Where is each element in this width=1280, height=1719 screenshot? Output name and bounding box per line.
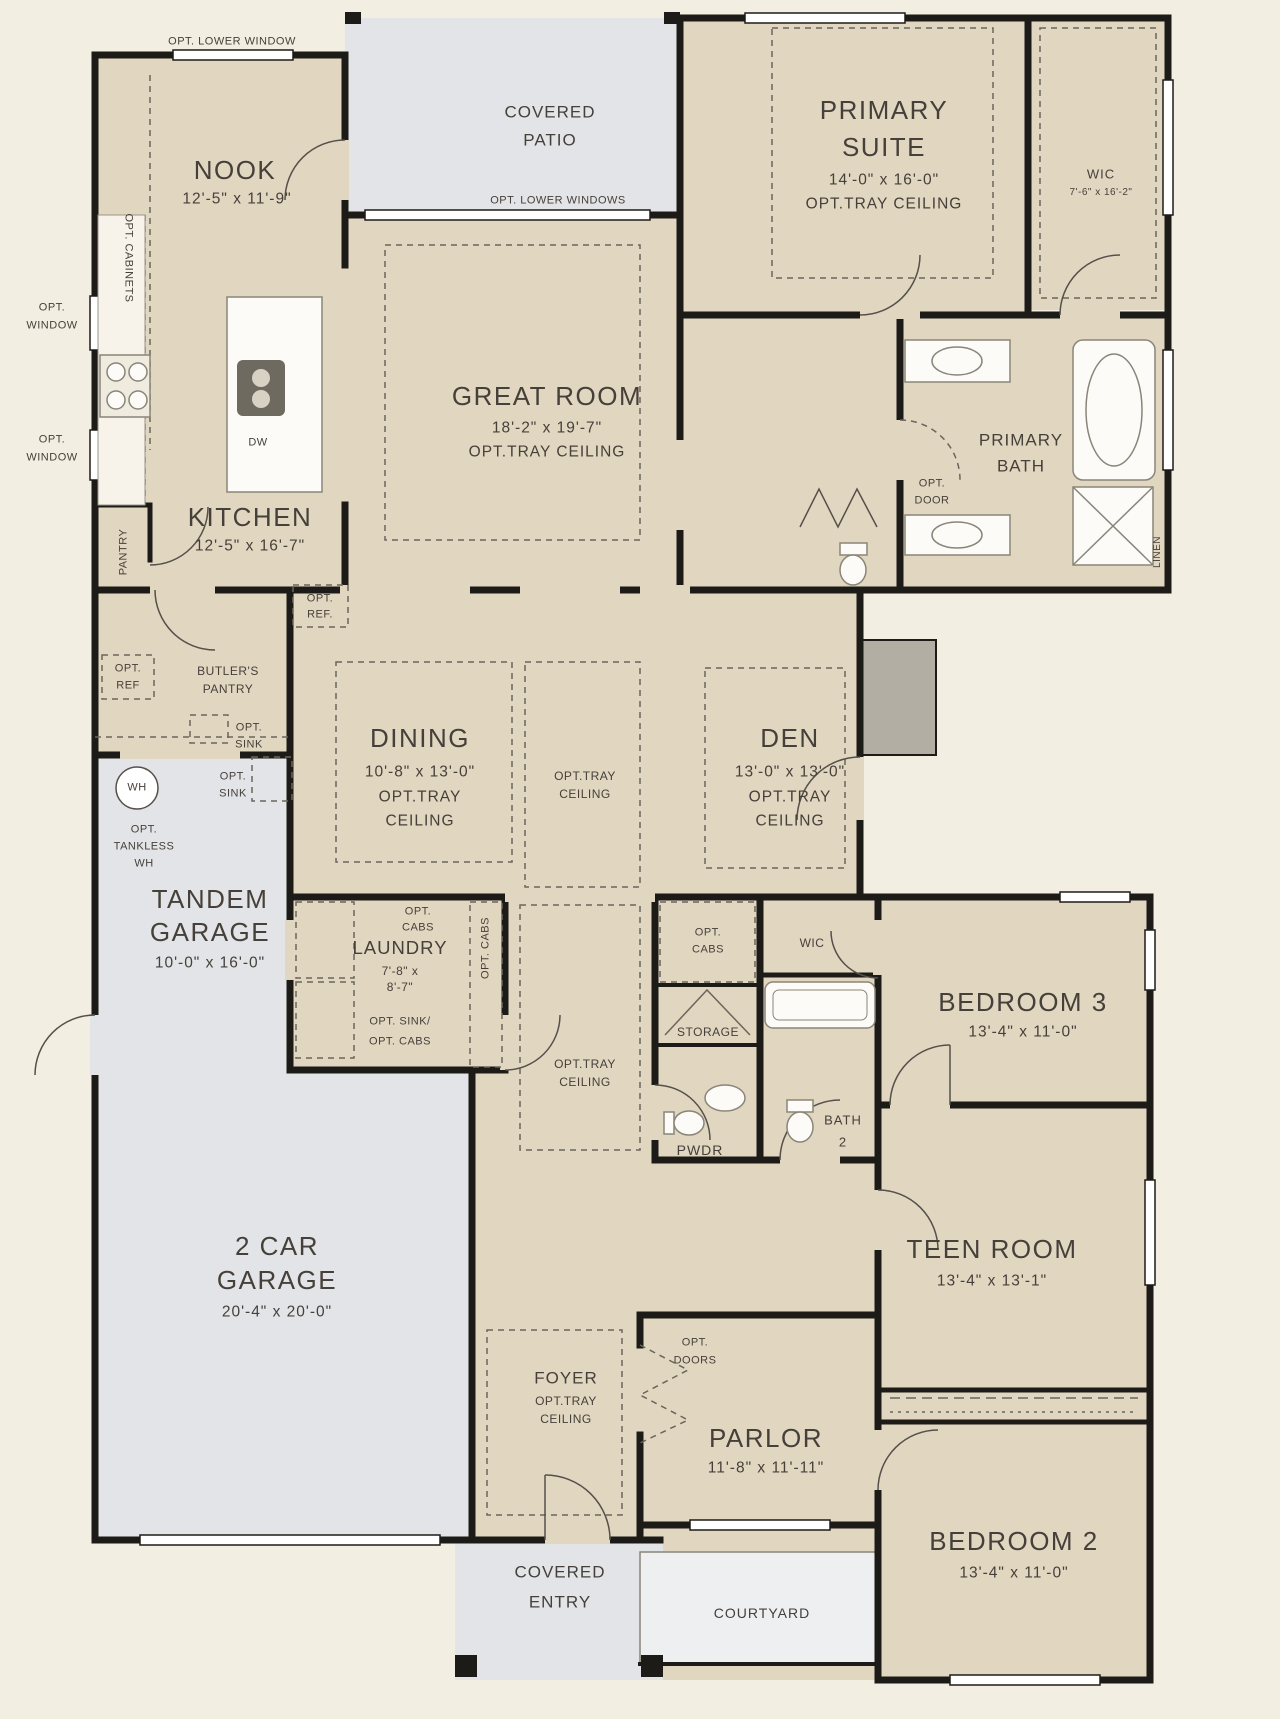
floor-plan-graphic xyxy=(0,0,1280,1719)
hall-tray-a: OPT.TRAY xyxy=(554,770,616,782)
cooktop-icon xyxy=(100,355,150,417)
hall-tray-b-2: CEILING xyxy=(559,1076,611,1088)
toilet-icon xyxy=(840,543,867,585)
dims-great-room: 18'-2" x 19'-7" xyxy=(492,420,602,436)
room-label-covered-entry: COVERED xyxy=(514,1564,605,1581)
room-label-teen-room: TEEN ROOM xyxy=(907,1236,1078,1262)
opt-window-b-2: WINDOW xyxy=(26,453,77,464)
opt-lower-windows-label: OPT. LOWER WINDOWS xyxy=(490,196,626,207)
opt-cabs-hall-2: CABS xyxy=(692,945,724,956)
opt-window-a: OPT. xyxy=(39,303,65,314)
room-label-bath2: BATH xyxy=(824,1114,862,1127)
dims-parlor: 11'-8" x 11'-11" xyxy=(708,1460,825,1476)
opt-ref-butlers-2: REF xyxy=(116,681,140,692)
room-label-tandem-garage: TANDEM xyxy=(152,886,269,912)
room-label-kitchen: KITCHEN xyxy=(188,504,313,530)
room-label-covered-patio: COVERED xyxy=(504,104,595,121)
room-label-parlor: PARLOR xyxy=(709,1425,823,1451)
window-teen-room xyxy=(1145,1180,1155,1285)
opt-ref-kitchen: OPT. xyxy=(307,594,333,605)
shower-icon xyxy=(1073,487,1153,565)
room-label-covered-entry-2: ENTRY xyxy=(529,1594,591,1611)
dishwasher-label: DW xyxy=(248,438,267,449)
opt-cabs-laundry: OPT. xyxy=(405,907,431,918)
pantry-label: PANTRY xyxy=(119,529,130,576)
room-label-wic: WIC xyxy=(1087,168,1115,181)
den-optional-feature xyxy=(860,640,936,755)
opt-cabs-laundry-2: CABS xyxy=(402,923,434,934)
window-wic xyxy=(1163,80,1173,215)
dims-primary-suite: 14'-0" x 16'-0" xyxy=(829,172,939,188)
opt-door-label-2: DOOR xyxy=(915,496,950,507)
opt-tankless-3: WH xyxy=(134,859,153,870)
room-label-butlers-pantry: BUTLER'S xyxy=(197,665,259,677)
opt-tray-dining: OPT.TRAY xyxy=(379,789,462,805)
room-label-primary-suite-2: SUITE xyxy=(842,134,926,160)
room-label-primary-bath: PRIMARY xyxy=(979,432,1063,449)
opt-sink-cabs-2: OPT. CABS xyxy=(369,1037,431,1048)
room-label-2car-garage: 2 CAR xyxy=(235,1233,319,1259)
room-label-foyer: FOYER xyxy=(534,1370,598,1387)
linen-label: LINEN xyxy=(1153,536,1163,568)
dims-wic: 7'-6" x 16'-2" xyxy=(1070,188,1133,198)
opt-tray-foyer: OPT.TRAY xyxy=(535,1395,597,1407)
window-great-room xyxy=(365,210,650,220)
room-label-bedroom2: BEDROOM 2 xyxy=(929,1528,1099,1554)
water-heater-label: WH xyxy=(127,783,146,794)
room-label-bedroom3: BEDROOM 3 xyxy=(938,989,1108,1015)
dims-kitchen: 12'-5" x 16'-7" xyxy=(195,538,305,554)
room-label-tandem-garage-2: GARAGE xyxy=(150,919,270,945)
opt-window-a-2: WINDOW xyxy=(26,321,77,332)
dims-laundry-2: 8'-7" xyxy=(387,981,413,993)
opt-tray-primary-suite: OPT.TRAY CEILING xyxy=(806,196,963,212)
hall-tray-a-2: CEILING xyxy=(559,788,611,800)
sink-icon xyxy=(932,347,982,375)
hall-tray-b: OPT.TRAY xyxy=(554,1058,616,1070)
dims-laundry: 7'-8" x xyxy=(382,965,419,977)
room-label-bath2-2: 2 xyxy=(839,1136,847,1149)
powder-sink-icon xyxy=(705,1085,745,1111)
dims-nook: 12'-5" x 11'-9" xyxy=(182,191,291,207)
window-bedroom3-top xyxy=(1060,892,1130,902)
dims-tandem-garage: 10'-0" x 16'-0" xyxy=(155,955,265,971)
opt-doors-label: OPT. xyxy=(682,1338,708,1349)
room-label-storage: STORAGE xyxy=(677,1026,739,1038)
window-primary-suite xyxy=(745,13,905,23)
opt-ref-kitchen-2: REF. xyxy=(307,610,333,621)
room-label-wic2: WIC xyxy=(800,937,825,949)
window-parlor xyxy=(690,1520,830,1530)
opt-sink-butlers: OPT. xyxy=(236,723,262,734)
opt-doors-label-2: DOORS xyxy=(674,1356,717,1367)
opt-sink-butlers-2: SINK xyxy=(235,740,263,751)
toilet-icon xyxy=(787,1100,813,1142)
opt-lower-window-label: OPT. LOWER WINDOW xyxy=(168,37,296,48)
room-label-nook: NOOK xyxy=(194,157,277,183)
room-label-den: DEN xyxy=(760,725,819,751)
window-bath xyxy=(1163,350,1173,470)
window-bedroom3-side xyxy=(1145,930,1155,990)
opt-tray-dining-2: CEILING xyxy=(385,813,454,829)
dims-dining: 10'-8" x 13'-0" xyxy=(365,764,475,780)
opt-cabs-laundry-vertical: OPT. CABS xyxy=(481,917,492,979)
opt-tray-den: OPT.TRAY xyxy=(749,789,832,805)
room-label-covered-patio-2: PATIO xyxy=(523,132,577,149)
opt-sink-cabs: OPT. SINK/ xyxy=(369,1017,430,1028)
sink-icon xyxy=(932,522,982,548)
opt-cabinets-label: OPT. CABINETS xyxy=(123,213,134,302)
opt-sink-garage: OPT. xyxy=(220,772,246,783)
dims-bedroom3: 13'-4" x 11'-0" xyxy=(968,1024,1077,1040)
opt-tankless: OPT. xyxy=(131,825,157,836)
room-label-dining: DINING xyxy=(370,725,470,751)
opt-tray-foyer-2: CEILING xyxy=(540,1413,592,1425)
dims-teen-room: 13'-4" x 13'-1" xyxy=(937,1273,1047,1289)
opt-ref-butlers: OPT. xyxy=(115,664,141,675)
room-label-primary-suite: PRIMARY xyxy=(820,97,949,123)
window-nook xyxy=(173,50,293,60)
dims-den: 13'-0" x 13'-0" xyxy=(735,764,845,780)
room-label-great-room: GREAT ROOM xyxy=(452,383,642,409)
floor-plan-page: OPT. LOWER WINDOW NOOK 12'-5" x 11'-9" O… xyxy=(0,0,1280,1719)
opt-tray-great-room: OPT.TRAY CEILING xyxy=(469,444,626,460)
opt-tankless-2: TANKLESS xyxy=(114,842,175,853)
opt-sink-garage-2: SINK xyxy=(219,789,247,800)
room-label-courtyard: COURTYARD xyxy=(714,1606,810,1620)
room-label-2car-garage-2: GARAGE xyxy=(217,1267,337,1293)
opt-tray-den-2: CEILING xyxy=(755,813,824,829)
opt-window-b: OPT. xyxy=(39,435,65,446)
garage-door xyxy=(140,1535,440,1545)
room-label-powder: PWDR xyxy=(677,1143,724,1157)
opt-door-label: OPT. xyxy=(919,479,945,490)
dims-2car-garage: 20'-4" x 20'-0" xyxy=(222,1304,332,1320)
tub2-icon xyxy=(765,982,875,1028)
opt-cabs-hall: OPT. xyxy=(695,928,721,939)
window-bedroom2 xyxy=(950,1675,1100,1685)
room-label-primary-bath-2: BATH xyxy=(997,458,1045,475)
room-label-laundry: LAUNDRY xyxy=(352,939,447,958)
dims-bedroom2: 13'-4" x 11'-0" xyxy=(959,1565,1068,1581)
room-label-butlers-pantry-2: PANTRY xyxy=(203,683,254,695)
toilet-icon xyxy=(664,1111,704,1135)
